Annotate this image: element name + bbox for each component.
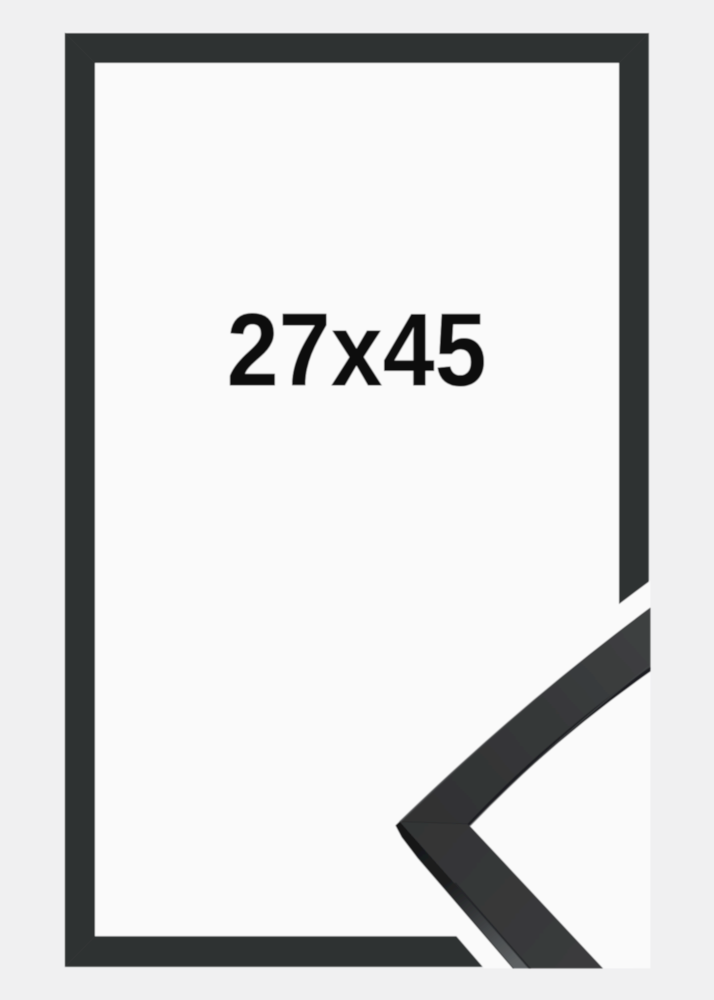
svg-text:27x45: 27x45 — [227, 293, 487, 409]
